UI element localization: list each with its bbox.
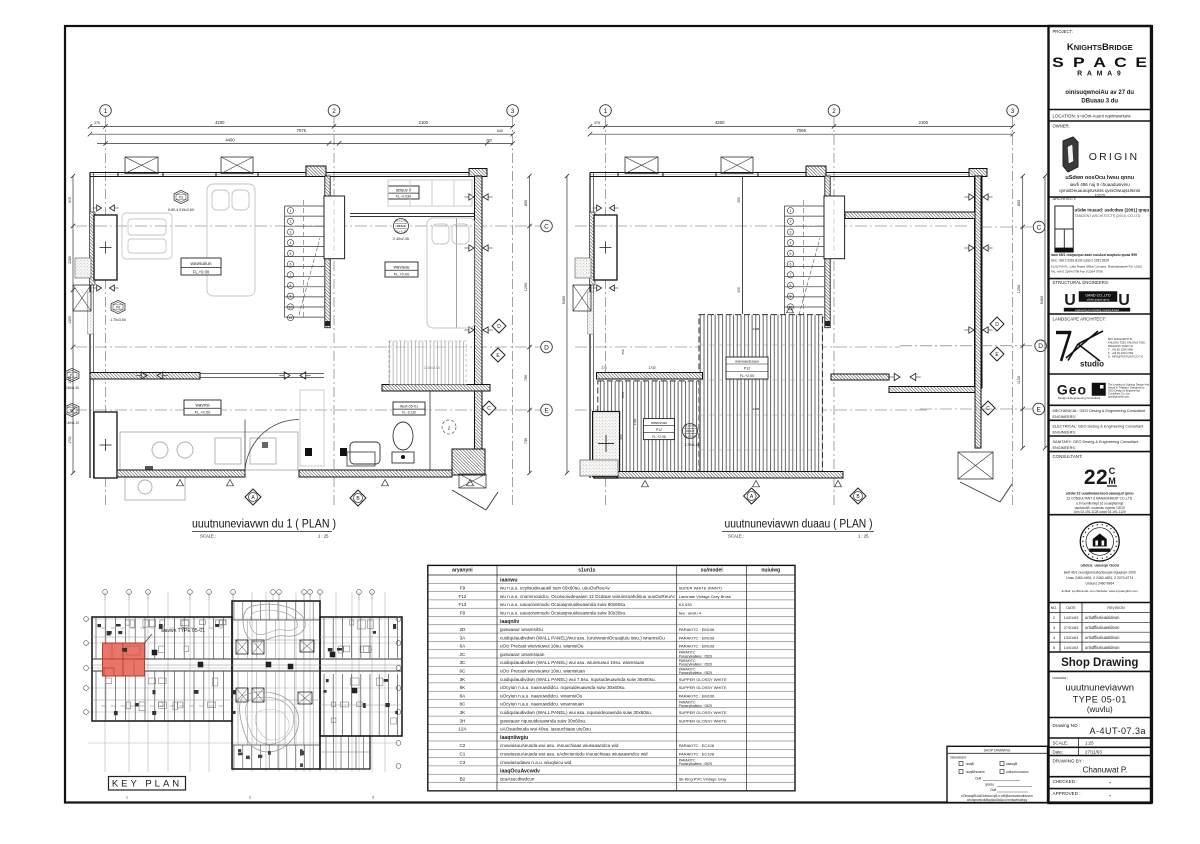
svg-text:oinisuqwnoiAu av 27 du: oinisuqwnoiAu av 27 du bbox=[1065, 90, 1134, 96]
svg-text:800: 800 bbox=[524, 200, 528, 206]
svg-text:F12: F12 bbox=[458, 594, 466, 599]
svg-text:PARAKITC : EM106: PARAKITC : EM106 bbox=[679, 693, 715, 698]
svg-text:7075: 7075 bbox=[297, 128, 307, 133]
svg-text:DATE: DATE bbox=[1066, 606, 1076, 610]
svg-text:5: 5 bbox=[1053, 646, 1055, 650]
svg-text:6A: 6A bbox=[460, 644, 467, 649]
svg-text:14/01/63: 14/01/63 bbox=[1064, 646, 1079, 650]
svg-text:1: 1 bbox=[790, 209, 792, 213]
svg-text:ELECTRICAL: GEO Desing & Engi: ELECTRICAL: GEO Desing & Engineering Con… bbox=[1053, 425, 1145, 429]
svg-text:REVISION: REVISION bbox=[1107, 606, 1125, 610]
svg-text:CONSULTANT:: CONSULTANT: bbox=[1053, 454, 1083, 459]
svg-text:iaaqOcuAvcwdv: iaaqOcuAvcwdv bbox=[500, 768, 540, 774]
svg-text:22 CONSULTANT & MANAGEMENT CO.: 22 CONSULTANT & MANAGEMENT CO.,LTD. bbox=[1067, 497, 1133, 501]
svg-text:uuutnuneviavwn: uuutnuneviavwn bbox=[1065, 683, 1134, 694]
svg-text:915: 915 bbox=[68, 197, 72, 203]
svg-text:3: 3 bbox=[511, 108, 515, 115]
svg-text:unlutfliusiuasideun: unlutfliusiuasideun bbox=[1085, 645, 1120, 650]
svg-text:6: 6 bbox=[790, 263, 792, 267]
svg-text:2.40x2.35: 2.40x2.35 bbox=[393, 237, 409, 241]
svg-text:C: C bbox=[487, 406, 491, 412]
svg-text:ORIGIN: ORIGIN bbox=[1089, 151, 1140, 163]
svg-text:5: 5 bbox=[790, 252, 792, 256]
svg-text:1: 1 bbox=[604, 108, 608, 115]
svg-text:P3: P3 bbox=[179, 196, 183, 200]
svg-text:27/01/63: 27/01/63 bbox=[1064, 626, 1079, 630]
svg-text:M: M bbox=[1108, 476, 1116, 486]
svg-text:1805: 1805 bbox=[621, 391, 625, 398]
svg-text:iaun 65/1 nisqsuquu asdc nouAc: iaun 65/1 nisqsuquu asdc nouAcd auqisciu… bbox=[1051, 253, 1137, 257]
svg-text:C1: C1 bbox=[459, 752, 465, 757]
svg-text:1200: 1200 bbox=[524, 283, 528, 291]
svg-text:FL.+0.00: FL.+0.00 bbox=[394, 272, 410, 277]
svg-text:9: 9 bbox=[790, 295, 792, 299]
svg-text:qvnoiDeuaunqsUsinis qvniOwuqsU: qvnoiDeuaunqsUsinis qvniOwuqsUsinis bbox=[1059, 188, 1141, 193]
svg-text:wu n.a.u. cnunnnouidcu. Ocusuo: wu n.a.u. cnunnnouidcu. Ocusuoiudeuaiwn … bbox=[500, 594, 676, 599]
svg-text:3A: 3A bbox=[460, 635, 467, 640]
svg-text:3H: 3H bbox=[459, 718, 465, 723]
svg-text:studio: studio bbox=[1080, 360, 1104, 369]
svg-text:Sk-King PVC Vintage Gray: Sk-King PVC Vintage Gray bbox=[679, 776, 727, 781]
svg-text:TYPE 05-01: TYPE 05-01 bbox=[1073, 695, 1127, 705]
svg-text:4: 4 bbox=[790, 241, 792, 245]
svg-text:iaaqniiwgiu: iaaqniiwgiu bbox=[500, 735, 528, 741]
svg-text:KX 630: KX 630 bbox=[679, 602, 693, 607]
svg-text:ENGINEERS:: ENGINEERS: bbox=[1053, 446, 1076, 450]
svg-text:2C: 2C bbox=[459, 652, 466, 657]
svg-text:FL.-0.130: FL.-0.130 bbox=[402, 411, 416, 415]
svg-text:FL.+2.05: FL.+2.05 bbox=[740, 374, 754, 378]
svg-text:7: 7 bbox=[290, 273, 292, 277]
svg-text:275: 275 bbox=[601, 366, 607, 370]
svg-text:D: D bbox=[544, 344, 549, 351]
svg-text:2100: 2100 bbox=[919, 120, 929, 125]
svg-text:P8: P8 bbox=[116, 306, 120, 310]
svg-text:8C: 8C bbox=[459, 702, 466, 707]
svg-text:E-Mail: LpnBccimaiL.com Websit: E-Mail: LpnBccimaiL.com Website: www.Lpn… bbox=[1062, 589, 1139, 593]
svg-text:1905: 1905 bbox=[68, 376, 72, 384]
svg-text:8: 8 bbox=[290, 284, 292, 288]
svg-text:su/model: su/model bbox=[701, 568, 724, 574]
svg-text:7065: 7065 bbox=[797, 128, 807, 133]
svg-text:8: 8 bbox=[790, 284, 792, 288]
svg-text:qcioiu: qcioiu bbox=[985, 783, 994, 787]
svg-text:F8: F8 bbox=[460, 610, 466, 615]
svg-text:Chanuwat P.: Chanuwat P. bbox=[1083, 766, 1128, 775]
svg-text:SCALE:: SCALE: bbox=[1053, 741, 1069, 746]
svg-text:uuuuuiu :: uuuuuiu : bbox=[1053, 676, 1069, 680]
svg-text:950: 950 bbox=[619, 434, 623, 439]
svg-text:KHLONG TOEI, KHLONG TOEI,: KHLONG TOEI, KHLONG TOEI, bbox=[1108, 341, 1146, 345]
svg-text:OWNER:: OWNER: bbox=[1053, 124, 1070, 129]
svg-text:nuiuiwg: nuiuiwg bbox=[761, 568, 780, 574]
svg-text:uOcyiun n.a.u. naanuwdidcu. wn: uOcyiun n.a.u. naanuwdidcu. wnamsiOu bbox=[500, 693, 583, 698]
svg-text:3: 3 bbox=[1053, 626, 1055, 630]
svg-text:ENGINEERS:: ENGINEERS: bbox=[1053, 415, 1076, 419]
svg-text:iaaqniiv: iaaqniiv bbox=[500, 619, 519, 625]
svg-text:Uns 02-191-1128 uuwd 02-191-11: Uns 02-191-1128 uuwd 02-191-1129 bbox=[1074, 510, 1126, 514]
svg-text:Paracrylkatleks : 0529: Paracrylkatleks : 0529 bbox=[679, 762, 712, 766]
svg-text:E : INFO@TKSTUDIO.CO.TH: E : INFO@TKSTUDIO.CO.TH bbox=[1108, 355, 1143, 359]
svg-text:D: D bbox=[1038, 343, 1043, 350]
svg-text:1.70x1.85: 1.70x1.85 bbox=[684, 443, 700, 447]
svg-text:10270: 10270 bbox=[1094, 193, 1105, 197]
svg-text:13/01/63: 13/01/63 bbox=[1064, 636, 1079, 640]
svg-text:E: E bbox=[1135, 56, 1147, 71]
svg-text:0.80,4.015x2.60: 0.80,4.015x2.60 bbox=[168, 208, 194, 212]
svg-text:1:25: 1:25 bbox=[1085, 741, 1094, 746]
svg-text:11: 11 bbox=[289, 316, 293, 320]
svg-text:SUPPER GLOSSY WHITE: SUPPER GLOSSY WHITE bbox=[679, 685, 727, 690]
svg-text:A-4UT-07.3a: A-4UT-07.3a bbox=[1089, 726, 1146, 736]
svg-text:cuidiqulaudivdwn (WALL PANEL): cuidiqulaudivdwn (WALL PANEL) wui 7.5su.… bbox=[500, 677, 656, 682]
svg-text:uOci Precast wiuivsuwui 10su.: uOci Precast wiuivsuwui 10su. wiamsiOu bbox=[500, 644, 584, 649]
svg-text:FL.-0.030: FL.-0.030 bbox=[396, 195, 411, 199]
svg-text:niswoisani:: niswoisani: bbox=[950, 756, 967, 760]
svg-text:650: 650 bbox=[621, 349, 625, 354]
svg-text:U: U bbox=[1118, 292, 1130, 309]
svg-text:wavsuiiun: wavsuiiun bbox=[190, 261, 211, 267]
svg-text:375: 375 bbox=[594, 121, 600, 125]
svg-text:FL+3.10: FL+3.10 bbox=[684, 435, 695, 439]
svg-text:SCALE :: SCALE : bbox=[728, 534, 744, 539]
svg-text:2: 2 bbox=[790, 220, 792, 224]
svg-text:1 : 25: 1 : 25 bbox=[858, 534, 869, 539]
svg-text:cuidiqulaudivdwn (WALL PANEL)/: cuidiqulaudivdwn (WALL PANEL)/wui asu. (… bbox=[500, 635, 665, 640]
svg-text:Oufi: Oufi bbox=[975, 777, 981, 781]
svg-text:C3: C3 bbox=[459, 760, 465, 765]
svg-text:guswaaur nqusuideuawnda suiw 3: guswaaur nqusuideuawnda suiw 30x60su. bbox=[500, 718, 586, 723]
svg-text:F : +66 (0) 2204 1784: F : +66 (0) 2204 1784 bbox=[1108, 351, 1134, 355]
svg-text:2: 2 bbox=[249, 796, 251, 800]
svg-text:PARAKITC : EM106: PARAKITC : EM106 bbox=[679, 635, 715, 640]
svg-text:1: 1 bbox=[290, 209, 292, 213]
svg-text:wiunqnwdcdcBqciaaOiaUci-nnnisw: wiunqnwdcdcBqciaaOiaUci-nnniswniudrqq bbox=[967, 798, 1027, 802]
svg-text:sziuuv #: sziuuv # bbox=[396, 187, 412, 192]
svg-text:2485: 2485 bbox=[753, 327, 760, 331]
svg-text:uSdwn oosOcu lwsu qnnu: uSdwn oosOcu lwsu qnnu bbox=[1065, 175, 1134, 181]
svg-text:SUPER WHITE (PAINT): SUPER WHITE (PAINT) bbox=[679, 586, 723, 591]
svg-text:8A: 8A bbox=[460, 693, 467, 698]
svg-text:2285: 2285 bbox=[68, 256, 72, 264]
svg-text:3K: 3K bbox=[460, 677, 467, 682]
svg-text:2.40x1.10: 2.40x1.10 bbox=[65, 421, 79, 425]
svg-text:10,92 Fth FL, Lake Ratda Offic: 10,92 Fth FL, Lake Ratda Office Complex,… bbox=[1051, 265, 1143, 269]
svg-text:luiauqB: luiauqB bbox=[1006, 762, 1018, 766]
svg-text:3: 3 bbox=[790, 230, 792, 234]
svg-text:7: 7 bbox=[790, 273, 792, 277]
svg-text:Unsu 2460-4691, 0 2460-4691, 0: Unsu 2460-4691, 0 2460-4691, 0 2070-6774 bbox=[1066, 576, 1133, 580]
svg-text:1700: 1700 bbox=[633, 418, 637, 425]
svg-text:D: D bbox=[497, 324, 501, 330]
svg-text:Date:: Date: bbox=[1053, 749, 1064, 754]
svg-text:PARAKITC : EM106: PARAKITC : EM106 bbox=[679, 627, 715, 632]
svg-text:unlutfliusiuasideun: unlutfliusiuasideun bbox=[1085, 625, 1120, 630]
svg-text:SANITARY: GEO Desing & Engine: SANITARY: GEO Desing & Engineering Consu… bbox=[1053, 440, 1140, 444]
svg-text:6C: 6C bbox=[459, 669, 466, 674]
svg-text:2: 2 bbox=[290, 220, 292, 224]
svg-text:Aiu#.05-01: Aiu#.05-01 bbox=[400, 404, 418, 408]
svg-text:Paracrylkatleks : 0529: Paracrylkatleks : 0529 bbox=[679, 671, 712, 675]
svg-text:BANGKOK 10110 TH: BANGKOK 10110 TH bbox=[1108, 344, 1133, 348]
svg-text:iwa : aivdu 4: iwa : aivdu 4 bbox=[679, 610, 702, 615]
svg-text:A: A bbox=[1093, 56, 1106, 71]
svg-text:C: C bbox=[1114, 56, 1127, 71]
svg-text:wu n.a.u. uauuciwnnudu Ocuiaiq: wu n.a.u. uauuciwnnudu Ocuiaiqnsuideuawn… bbox=[500, 610, 626, 615]
svg-text:P: P bbox=[1073, 56, 1085, 71]
svg-text:unlutfliusiuasideun: unlutfliusiuasideun bbox=[1085, 635, 1120, 640]
svg-text:14/01/63: 14/01/63 bbox=[1064, 616, 1079, 620]
svg-text:u.9 naunfiemiqd 16 uuuaqfiemiq: u.9 naunfiemiqd 16 uuuaqfiemiqd bbox=[1076, 502, 1123, 506]
svg-text:5: 5 bbox=[290, 252, 292, 256]
svg-text:C2: C2 bbox=[459, 743, 465, 748]
svg-text:22: 22 bbox=[1084, 466, 1108, 489]
svg-text:27/11/63: 27/11/63 bbox=[1085, 749, 1102, 754]
svg-text:DRAWING BY :: DRAWING BY : bbox=[1053, 759, 1085, 764]
svg-text:iaanwu: iaanwu bbox=[500, 577, 518, 583]
svg-text:U: U bbox=[1064, 292, 1076, 309]
svg-text:Paracrylkatleks : 0529: Paracrylkatleks : 0529 bbox=[679, 654, 712, 658]
svg-text:5460: 5460 bbox=[1040, 296, 1044, 304]
svg-text:PARAKITC : EM106: PARAKITC : EM106 bbox=[679, 644, 715, 649]
svg-text:B2: B2 bbox=[460, 776, 466, 781]
svg-text:APPROVED :: APPROVED : bbox=[1053, 791, 1081, 796]
svg-text:KNIGHTSBRIDGE: KNIGHTSBRIDGE bbox=[1067, 42, 1133, 53]
svg-text:2: 2 bbox=[332, 108, 336, 115]
svg-text:FL.+0.00: FL.+0.00 bbox=[195, 410, 211, 415]
svg-text:Shop Drawing: Shop Drawing bbox=[1061, 657, 1138, 669]
svg-text:640: 640 bbox=[497, 129, 503, 133]
svg-text:F9: F9 bbox=[460, 586, 466, 591]
svg-text:Unsuns 2460 9964: Unsuns 2460 9964 bbox=[1086, 582, 1115, 586]
svg-text:Uns. +66 2 2281 8132: Uns. +66 2 2281 8132 uqnd 2 2281 8109 bbox=[1051, 259, 1109, 263]
svg-text:iaufi 46/1 nuusiguinsuAcdsuuqn: iaufi 46/1 nuusiguinsuAcdsuuqni siguqnqn… bbox=[1064, 571, 1136, 575]
svg-text:DBuaau 3 du: DBuaau 3 du bbox=[1081, 99, 1118, 105]
svg-text:guswaaur wnamsiOu: guswaaur wnamsiOu bbox=[500, 627, 543, 632]
svg-text:4: 4 bbox=[290, 241, 292, 245]
svg-text:4400: 4400 bbox=[225, 137, 235, 142]
svg-text:0.60x1.30: 0.60x1.30 bbox=[65, 386, 79, 390]
svg-text:wavuauduaau: wavuauduaau bbox=[735, 360, 759, 364]
svg-text:MECHANICAL: GEO Desing & Engi: MECHANICAL: GEO Desing & Engineering Con… bbox=[1053, 409, 1146, 413]
svg-text:unlutfliusiuasideun: unlutfliusiuasideun bbox=[1085, 615, 1120, 620]
svg-text:S: S bbox=[1052, 56, 1064, 71]
svg-text:2100: 2100 bbox=[419, 120, 429, 125]
svg-text:wu n.a.u. ucyiisudeuaueil sui: wu n.a.u. ucyiisudeuaueil suin 60x60su. … bbox=[500, 586, 610, 591]
svg-text:1 : 25: 1 : 25 bbox=[318, 534, 329, 539]
svg-text:CHECKED :: CHECKED : bbox=[1053, 779, 1078, 784]
svg-text:udluuinuuuciuc: udluuinuuuciuc bbox=[1006, 770, 1029, 774]
svg-text:s1un1s: s1un1s bbox=[578, 568, 595, 574]
svg-text:FL.+2.05: FL.+2.05 bbox=[652, 435, 666, 439]
svg-text:C: C bbox=[1109, 466, 1116, 476]
svg-text:1200: 1200 bbox=[1017, 285, 1021, 293]
svg-text:cnuwiusuuAeusda wui asu. uAdnc: cnuwiusuuAeusda wui asu. uAdnciuniudu iA… bbox=[500, 752, 648, 757]
svg-text:2D: 2D bbox=[459, 627, 466, 632]
svg-text:cuidiqulaudivdwn (WALL PANEL): cuidiqulaudivdwn (WALL PANEL) wui asu. n… bbox=[500, 710, 652, 715]
svg-text:C: C bbox=[544, 223, 549, 230]
svg-text:wavuau: wavuau bbox=[394, 264, 410, 269]
svg-text:KEY PLAN: KEY PLAN bbox=[112, 779, 182, 790]
svg-text:E: E bbox=[1037, 406, 1042, 413]
svg-text:iawfi 496 nuj 9 chuaadusivinu: iawfi 496 nuj 9 chuaadusivinu bbox=[1070, 182, 1130, 187]
svg-text:5460: 5460 bbox=[562, 296, 566, 304]
svg-text:wavuvvau: wavuvvau bbox=[651, 421, 667, 425]
svg-text:800: 800 bbox=[1017, 200, 1021, 206]
svg-text:SUPPER GLOSSY WHITE: SUPPER GLOSSY WHITE bbox=[679, 718, 727, 723]
svg-text:2: 2 bbox=[832, 108, 836, 115]
svg-text:wu n.a.u. uauuciwnnudu Ocuiaiq: wu n.a.u. uauuciwnnudu Ocuiaiqnsuideuawn… bbox=[500, 602, 626, 607]
svg-text:uOcyiun n.a.u. naanuwdidcu. wn: uOcyiun n.a.u. naanuwdidcu. wnamsiuan bbox=[500, 702, 584, 707]
svg-text:uSdw 22 uuadiwauciood uauuqud: uSdw 22 uuadiwauciood uauuqud qnnu bbox=[1066, 492, 1134, 496]
svg-text:1730: 1730 bbox=[648, 366, 655, 370]
svg-text:1: 1 bbox=[104, 108, 108, 115]
svg-text:uAOsuidinuda wui 40su. iasuuch: uAOsuidinuda wui 40su. iasuuchiaas uiuOs… bbox=[500, 727, 591, 732]
svg-text:900: 900 bbox=[737, 287, 741, 293]
svg-text:aryanyni: aryanyni bbox=[452, 568, 473, 574]
svg-text:TeL +66 0 2264 0708: TeL +66 0 2264 0708 Fax 0 2264 0708 bbox=[1051, 270, 1103, 274]
svg-text:wavwn TYPE 05-01: wavwn TYPE 05-01 bbox=[161, 628, 205, 634]
svg-text:C: C bbox=[1037, 224, 1042, 231]
svg-text:Drawing NO :: Drawing NO : bbox=[1053, 723, 1081, 728]
svg-text:auqB: auqB bbox=[966, 762, 975, 766]
svg-text:ARCHITECT:: ARCHITECT: bbox=[1053, 196, 1077, 201]
svg-text:1150: 1150 bbox=[1017, 376, 1021, 384]
svg-text:R A M A 9: R A M A 9 bbox=[1077, 71, 1122, 78]
svg-text:guswaaur wnamsiuan: guswaaur wnamsiuan bbox=[500, 652, 545, 657]
svg-text:3: 3 bbox=[290, 230, 292, 234]
svg-text:9: 9 bbox=[290, 295, 292, 299]
svg-text:uuutnuneviavwn du 1 ( PLAN ): uuutnuneviavwn du 1 ( PLAN ) bbox=[192, 519, 336, 531]
svg-text:uOci Precast wiuivsuwui 10su.: uOci Precast wiuivsuwui 10su. wiamsiuan bbox=[500, 669, 585, 674]
svg-text:200: 200 bbox=[486, 138, 492, 142]
svg-text:4: 4 bbox=[1053, 636, 1055, 640]
svg-text:F13: F13 bbox=[458, 602, 466, 607]
svg-text:86/7 SUKHUMVIT 31: 86/7 SUKHUMVIT 31 bbox=[1108, 337, 1133, 341]
svg-text:NO.: NO. bbox=[1051, 606, 1057, 610]
svg-text:Laminate Vintage Gray Brush: Laminate Vintage Gray Brush bbox=[679, 594, 731, 599]
svg-text:geo@geothai.com: geo@geothai.com bbox=[1108, 395, 1129, 399]
svg-text:cnuwiusuuAeusda wui asu. iAsuu: cnuwiusuuAeusda wui asu. iAsuuchiaas wiu… bbox=[500, 743, 619, 748]
svg-text:12A: 12A bbox=[458, 727, 467, 732]
svg-text:cuidiqulaudivdwn (WALL PANEL): cuidiqulaudivdwn (WALL PANEL) wui asu. w… bbox=[500, 660, 645, 665]
svg-text:1730: 1730 bbox=[68, 436, 72, 444]
svg-text:PARAKITC : EC108: PARAKITC : EC108 bbox=[679, 743, 715, 748]
svg-text:Paracrylkatleks : 0529: Paracrylkatleks : 0529 bbox=[679, 704, 712, 708]
svg-text:790: 790 bbox=[524, 375, 528, 381]
svg-text:FL+2.05: FL+2.05 bbox=[395, 219, 406, 223]
svg-text:uuutnuneviavwn duaau ( PLAN ): uuutnuneviavwn duaau ( PLAN ) bbox=[725, 519, 873, 531]
svg-text:900: 900 bbox=[737, 197, 741, 203]
svg-text:10: 10 bbox=[289, 305, 293, 309]
svg-text:1.70x3.60: 1.70x3.60 bbox=[110, 318, 126, 322]
svg-text:uSdw quaud qnnu: uSdw quaud qnnu bbox=[1087, 298, 1110, 302]
svg-text:PROJECT:: PROJECT: bbox=[1053, 29, 1073, 34]
svg-text:03.6-#: 03.6-# bbox=[686, 429, 695, 433]
svg-text:TANGENT ARCHITECTS (2001) CO.L: TANGENT ARCHITECTS (2001) CO.LTD. bbox=[1075, 214, 1142, 218]
svg-text:wavnsi: wavnsi bbox=[195, 402, 209, 407]
svg-text:8K: 8K bbox=[460, 685, 467, 690]
svg-text:uOcyiun n.a.u. naanuwdidcu. nq: uOcyiun n.a.u. naanuwdidcu. nqusuideuawn… bbox=[500, 685, 626, 690]
svg-text:LANDSCAPE ARCHITECT:: LANDSCAPE ARCHITECT: bbox=[1053, 317, 1106, 322]
svg-text:PARAKITC : EC108: PARAKITC : EC108 bbox=[679, 752, 715, 757]
svg-text:Design & Engineering Consultan: Design & Engineering Consultant bbox=[1058, 396, 1101, 400]
svg-text:2485: 2485 bbox=[753, 407, 760, 411]
svg-text:Paracrylkatleks : 0529: Paracrylkatleks : 0529 bbox=[679, 663, 712, 667]
svg-text:03.6-#: 03.6-# bbox=[397, 224, 406, 228]
svg-text:SUPPER GLOSSY WHITE: SUPPER GLOSSY WHITE bbox=[679, 677, 727, 682]
svg-text:6: 6 bbox=[290, 263, 292, 267]
svg-text:auqBinuduls: auqBinuduls bbox=[966, 770, 985, 774]
svg-text:1: 1 bbox=[126, 796, 128, 800]
svg-text:E: E bbox=[544, 407, 549, 414]
svg-text:FL.+0.00: FL.+0.00 bbox=[193, 269, 210, 274]
svg-text:1355: 1355 bbox=[68, 316, 72, 324]
svg-text:3C: 3C bbox=[459, 660, 466, 665]
svg-text:qcaAsucdiwdcun: qcaAsucdiwdcun bbox=[500, 776, 535, 781]
svg-text:4200: 4200 bbox=[215, 120, 225, 125]
svg-text:FL+3.10: FL+3.10 bbox=[395, 230, 406, 234]
svg-text:T : +66 (0) 2204 1469: T : +66 (0) 2204 1469 bbox=[1108, 348, 1134, 352]
svg-text:P12: P12 bbox=[744, 367, 750, 371]
svg-text:STRUCTURAL ENGINEERS:: STRUCTURAL ENGINEERS: bbox=[1053, 280, 1109, 285]
svg-text:ENGINEERS:: ENGINEERS: bbox=[1053, 431, 1076, 435]
svg-text:D: D bbox=[995, 322, 999, 328]
svg-text:2: 2 bbox=[1053, 616, 1055, 620]
svg-text:730: 730 bbox=[524, 438, 528, 444]
svg-text:SUPPER GLOSSY WHITE: SUPPER GLOSSY WHITE bbox=[679, 710, 727, 715]
svg-text:3K: 3K bbox=[460, 710, 467, 715]
svg-text:P12: P12 bbox=[656, 428, 662, 432]
svg-text:3: 3 bbox=[1011, 108, 1015, 115]
svg-text:SCALE :: SCALE : bbox=[200, 534, 216, 539]
svg-text:cnuwiusudawu n.a.u. wiuqluicu: cnuwiusudawu n.a.u. wiuqluicu wid bbox=[500, 760, 572, 765]
svg-text:SHOP DRAWING: SHOP DRAWING bbox=[984, 748, 1011, 752]
svg-text:4200: 4200 bbox=[715, 120, 725, 125]
svg-text:(wuvlu): (wuvlu) bbox=[1087, 705, 1113, 714]
svg-text:3: 3 bbox=[372, 796, 374, 800]
svg-text:375: 375 bbox=[94, 121, 100, 125]
svg-text:uSdw inuaud: asdcdwu (2001) qn: uSdw inuaud: asdcdwu (2001) qnqu bbox=[1075, 208, 1150, 213]
svg-text:engineering & consulting compa: engineering & consulting company limited bbox=[1075, 309, 1120, 312]
svg-text:Oufi: Oufi bbox=[990, 788, 996, 792]
svg-text:uSdcu: uuusqn Ocdu: uSdcu: uuusqn Ocdu bbox=[1081, 564, 1120, 568]
svg-text:FL+2.05: FL+2.05 bbox=[684, 424, 695, 428]
svg-text:LOCATION: s=uOni-Auuni nqvinwu: LOCATION: s=uOni-Auuni nqvinwuriuns bbox=[1053, 114, 1132, 119]
